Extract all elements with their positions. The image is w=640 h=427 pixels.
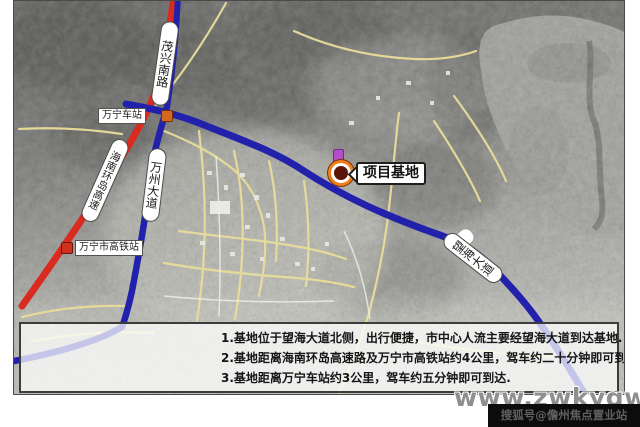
train-station-icon xyxy=(161,110,173,122)
hsr-station-icon xyxy=(61,242,73,254)
panel-line-1: 1.基地位于望海大道北侧，出行便捷，市中心人流主要经望海大道到达基地. xyxy=(221,328,622,348)
wanning-station-label: 万宁车站 xyxy=(98,108,146,124)
project-site-label: 项目基地 xyxy=(356,162,426,185)
satellite-map: 1.基地位于望海大道北侧，出行便捷，市中心人流主要经望海大道到达基地. 2.基地… xyxy=(13,0,625,395)
page: 1.基地位于望海大道北侧，出行便捷，市中心人流主要经望海大道到达基地. 2.基地… xyxy=(0,0,640,427)
credit-bar: 搜狐号@儋州焦点置业站 xyxy=(488,404,640,427)
wanning-hsr-station-label: 万宁市高铁站 xyxy=(75,240,143,256)
project-target-icon xyxy=(334,166,348,180)
panel-line-2: 2.基地距离海南环岛高速路及万宁市高铁站约4公里，驾车约二十分钟即可到达. xyxy=(221,348,625,368)
